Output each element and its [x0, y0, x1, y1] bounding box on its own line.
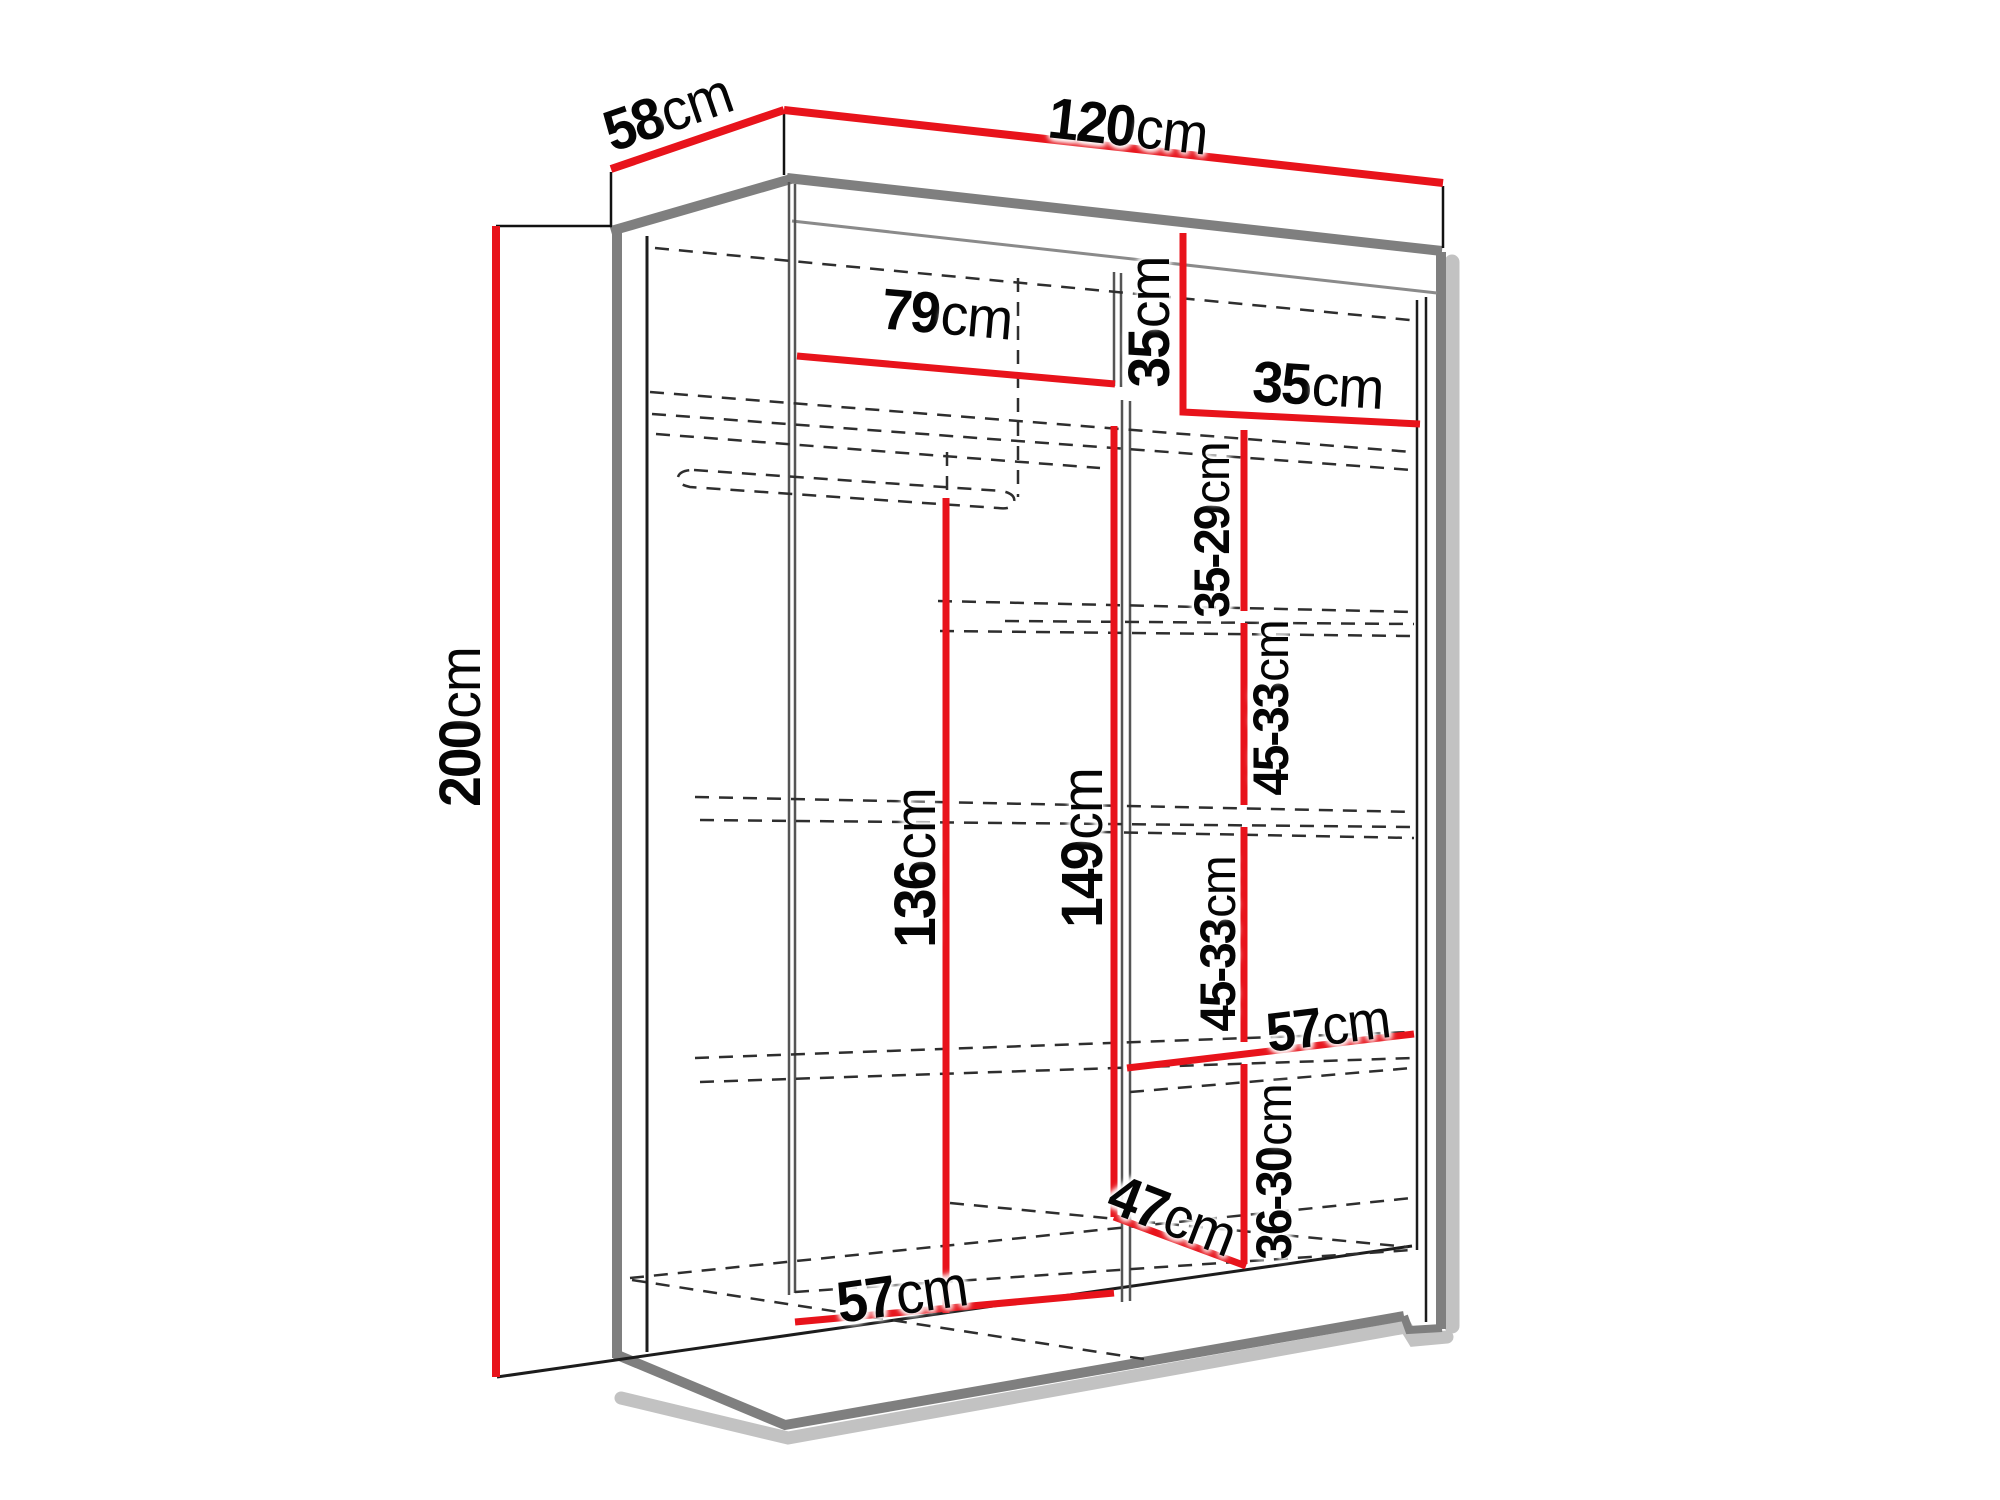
dim-height: 200cm	[432, 647, 490, 807]
dim-shelf-width: 57cm	[1263, 991, 1393, 1061]
dim-shelf-gap-top: 35-29cm	[1187, 442, 1237, 617]
wardrobe-drawing	[0, 0, 2000, 1500]
dim-interior-height: 149cm	[1054, 768, 1112, 928]
dim-hanging-height: 136cm	[887, 788, 945, 948]
top-section-width-line	[797, 356, 1115, 384]
dim-top-cubby-width: 35cm	[1251, 353, 1385, 419]
dim-top-cubby-height: 35cm	[1121, 257, 1179, 388]
interior-dividers	[789, 182, 1130, 1302]
dim-height-unit: cm	[428, 647, 493, 719]
dim-shelf-gap-lower: 45-33cm	[1193, 856, 1243, 1031]
hanging-rail-dashed	[678, 470, 1015, 508]
cabinet-shadow	[621, 262, 1452, 1438]
dim-height-value: 200	[428, 721, 493, 807]
dim-top-section-width: 79cm	[879, 280, 1015, 349]
dim-shelf-gap-bottom: 36-30cm	[1249, 1084, 1299, 1259]
dim-width-unit: cm	[1133, 95, 1211, 167]
dim-shelf-gap-upper: 45-33cm	[1246, 620, 1296, 795]
dim-width-value: 120	[1045, 85, 1138, 159]
wardrobe-diagram: 58cm 120cm 200cm 79cm 35cm 35cm 35-29cm …	[0, 0, 2000, 1500]
